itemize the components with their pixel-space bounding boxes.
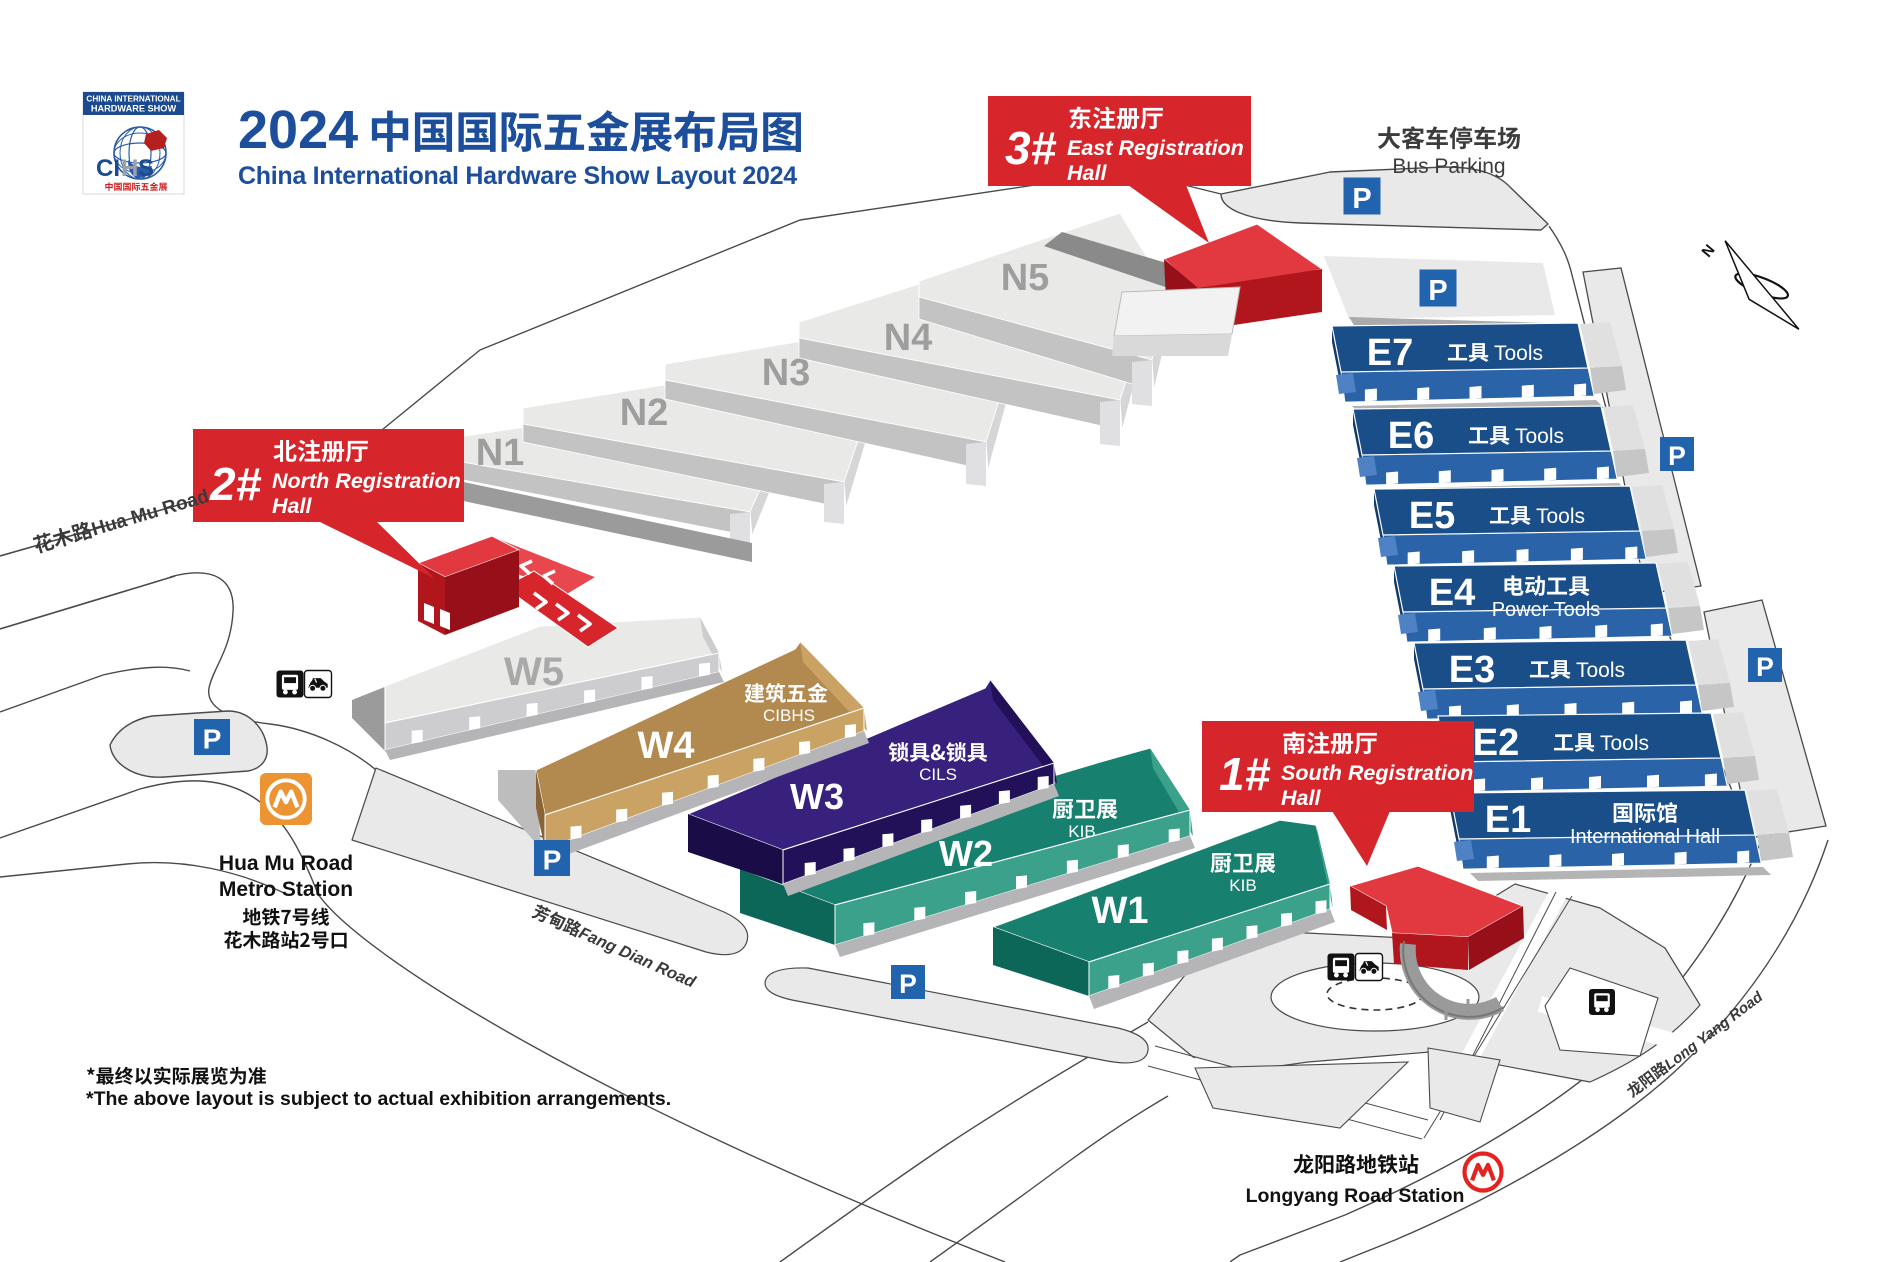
svg-text:P: P (1668, 441, 1686, 471)
svg-text:P: P (899, 969, 917, 999)
svg-text:W3: W3 (790, 776, 844, 817)
svg-text:Tools: Tools (1600, 732, 1649, 755)
svg-text:CIBHS: CIBHS (763, 706, 815, 725)
svg-text:Power Tools: Power Tools (1492, 599, 1601, 621)
svg-text:North Registration: North Registration (272, 469, 461, 493)
svg-text:P: P (1756, 652, 1774, 682)
svg-text:E5: E5 (1409, 495, 1455, 537)
svg-text:P: P (203, 724, 222, 755)
svg-text:N5: N5 (1001, 257, 1050, 299)
svg-text:Tools: Tools (1494, 342, 1543, 365)
svg-text:1#: 1# (1219, 748, 1271, 800)
svg-text:S: S (138, 155, 154, 182)
svg-text:*The above layout is subject t: *The above layout is subject to actual e… (86, 1088, 671, 1110)
svg-text:N1: N1 (476, 432, 525, 474)
svg-text:China International Hardware: China International Hardware Show Layout… (238, 162, 797, 190)
svg-text:Hall: Hall (272, 494, 312, 518)
svg-text:Metro Station: Metro Station (219, 878, 353, 901)
svg-text:W1: W1 (1092, 890, 1149, 932)
svg-text:South Registration: South Registration (1281, 761, 1473, 785)
svg-text:HARDWARE SHOW: HARDWARE SHOW (91, 104, 177, 114)
svg-text:E4: E4 (1429, 572, 1475, 614)
svg-text:E3: E3 (1449, 649, 1495, 691)
svg-text:International Hall: International Hall (1570, 826, 1720, 848)
svg-text:Hua Mu Road: Hua Mu Road (219, 852, 353, 875)
svg-text:CHINA INTERNATIONAL: CHINA INTERNATIONAL (86, 95, 180, 104)
svg-text:N2: N2 (620, 392, 669, 434)
svg-text:Tools: Tools (1536, 505, 1585, 528)
svg-text:3#: 3# (1005, 122, 1057, 174)
svg-text:Tools: Tools (1515, 425, 1564, 448)
svg-text:E2: E2 (1473, 722, 1519, 764)
svg-text:KIB: KIB (1229, 876, 1256, 895)
svg-text:Bus Parking: Bus Parking (1392, 155, 1505, 178)
svg-text:Tools: Tools (1576, 659, 1625, 682)
svg-text:W4: W4 (638, 725, 695, 767)
svg-text:E1: E1 (1485, 799, 1531, 841)
svg-text:2#: 2# (209, 458, 262, 510)
svg-text:P: P (1428, 275, 1447, 307)
svg-text:P: P (1352, 183, 1371, 215)
svg-text:W2: W2 (939, 833, 993, 874)
svg-text:Longyang Road Station: Longyang Road Station (1246, 1185, 1465, 1207)
svg-text:East Registration: East Registration (1067, 136, 1244, 160)
svg-text:E7: E7 (1367, 332, 1413, 374)
svg-text:CILS: CILS (919, 765, 957, 784)
svg-text:Hall: Hall (1067, 161, 1107, 185)
svg-text:KIB: KIB (1068, 822, 1095, 841)
svg-text:E6: E6 (1388, 415, 1434, 457)
svg-text:P: P (543, 845, 562, 876)
svg-text:Hall: Hall (1281, 786, 1321, 810)
svg-text:W5: W5 (504, 650, 564, 694)
svg-text:H: H (121, 155, 138, 182)
svg-text:CI: CI (96, 155, 120, 182)
svg-text:2024: 2024 (238, 100, 358, 160)
svg-text:N4: N4 (884, 317, 933, 359)
